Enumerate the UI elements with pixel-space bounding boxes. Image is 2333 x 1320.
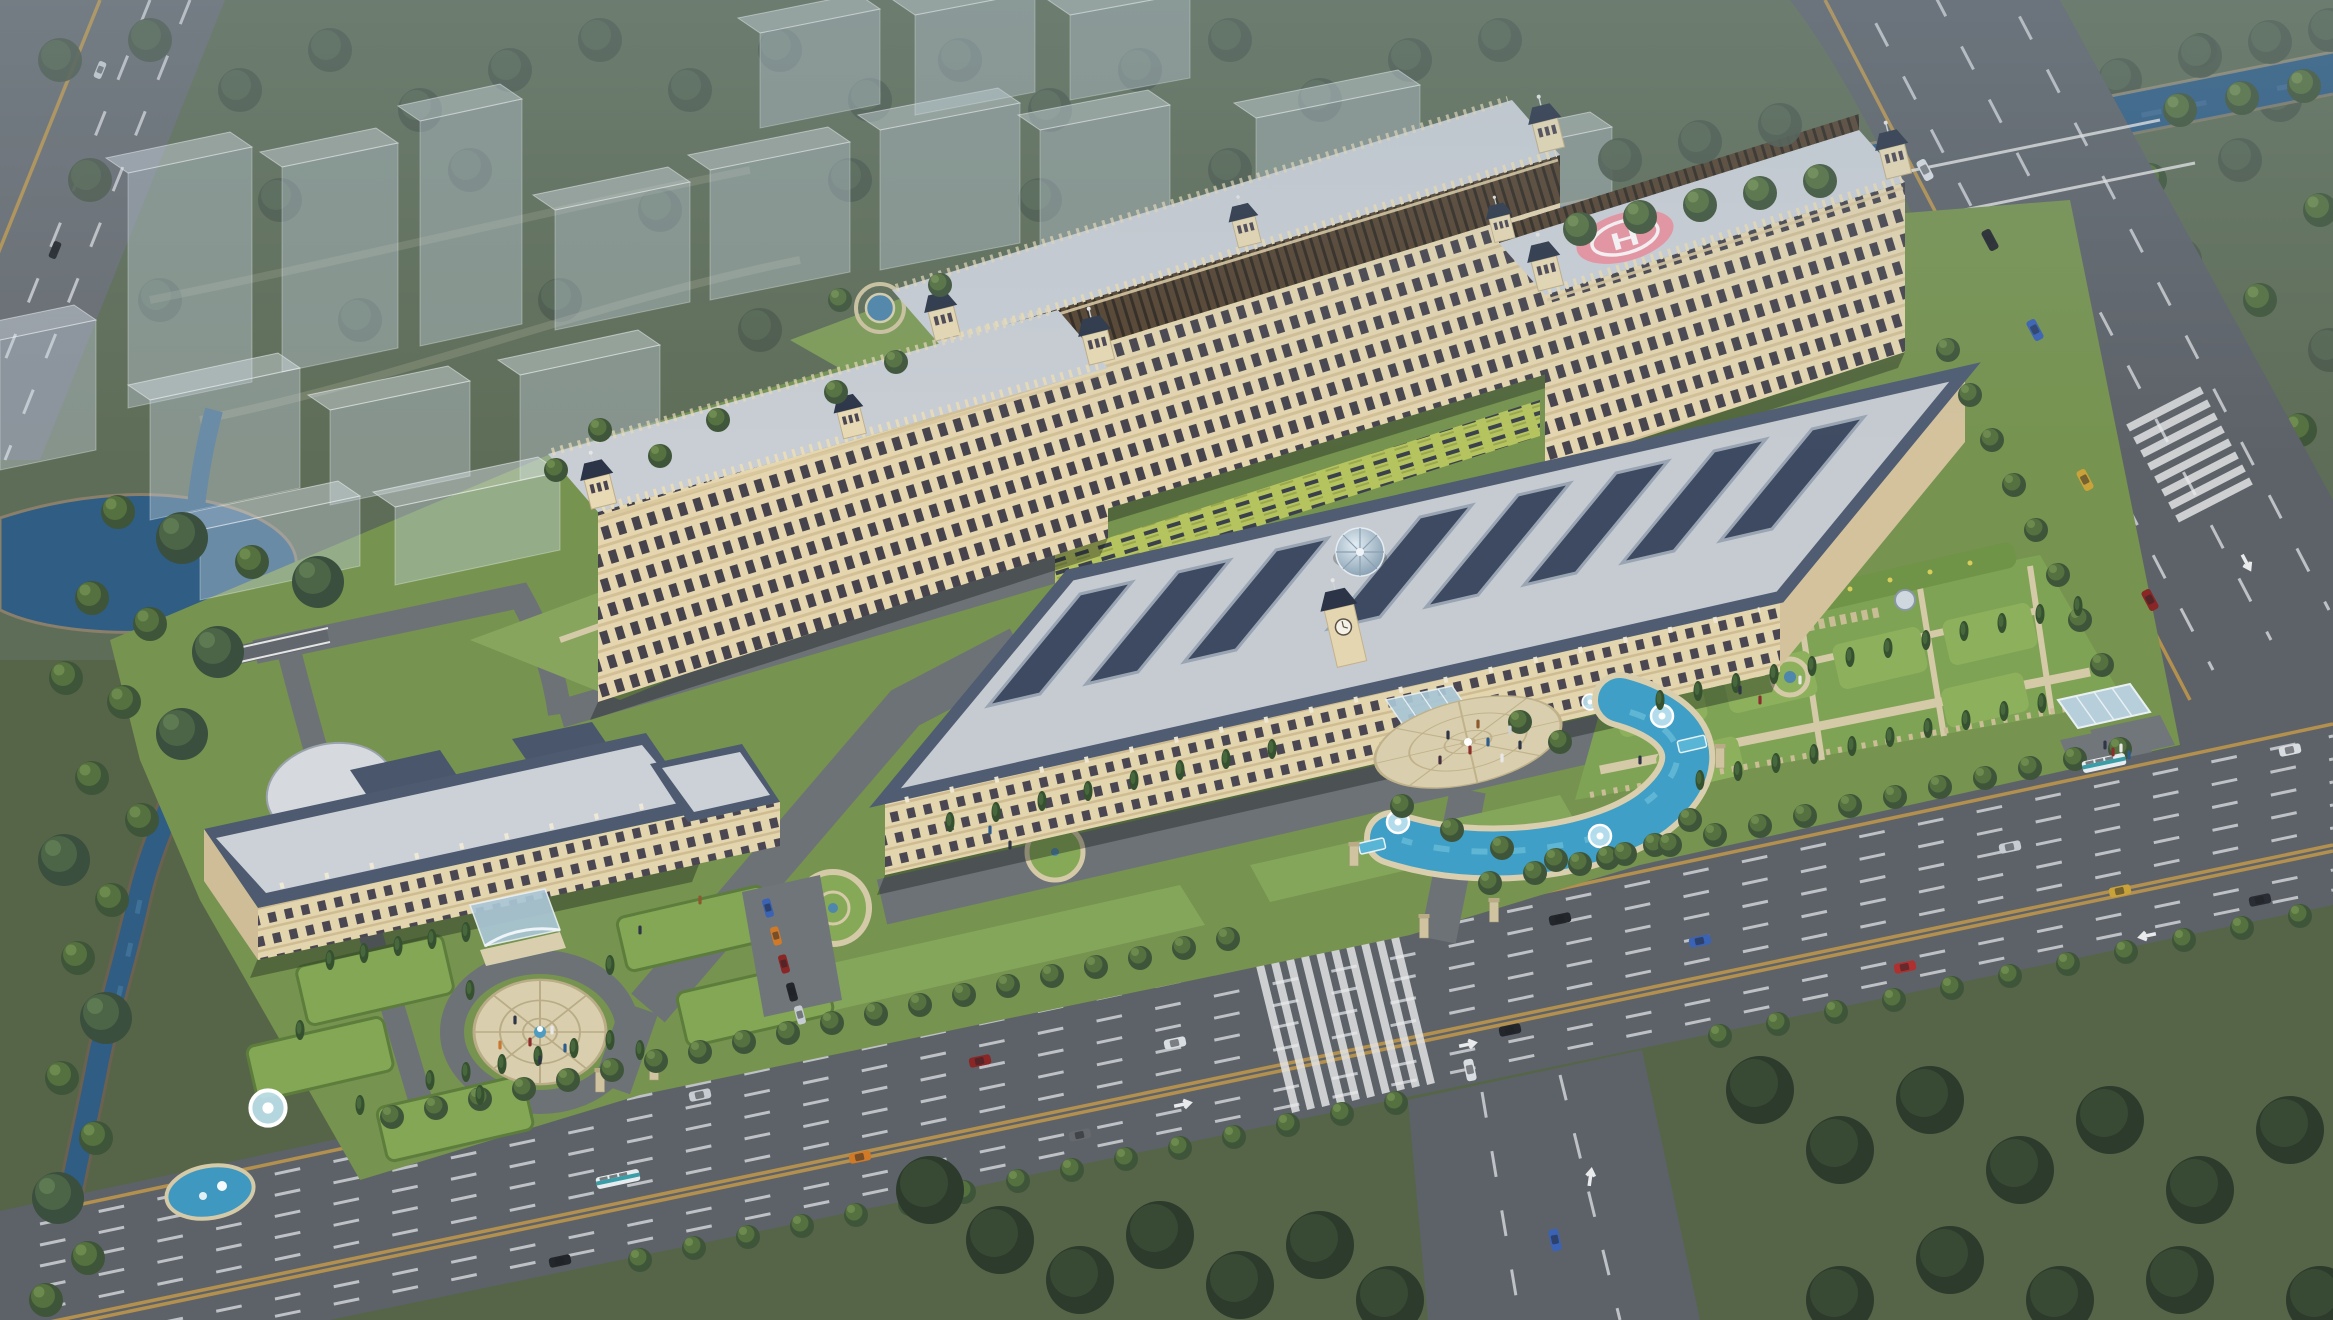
gazebo-dome — [1895, 590, 1915, 610]
aerial-rendering: H — [0, 0, 2333, 1320]
rendering-canvas: H — [0, 0, 2333, 1320]
round-pond — [866, 294, 894, 322]
pavilion-plaza — [474, 980, 606, 1084]
